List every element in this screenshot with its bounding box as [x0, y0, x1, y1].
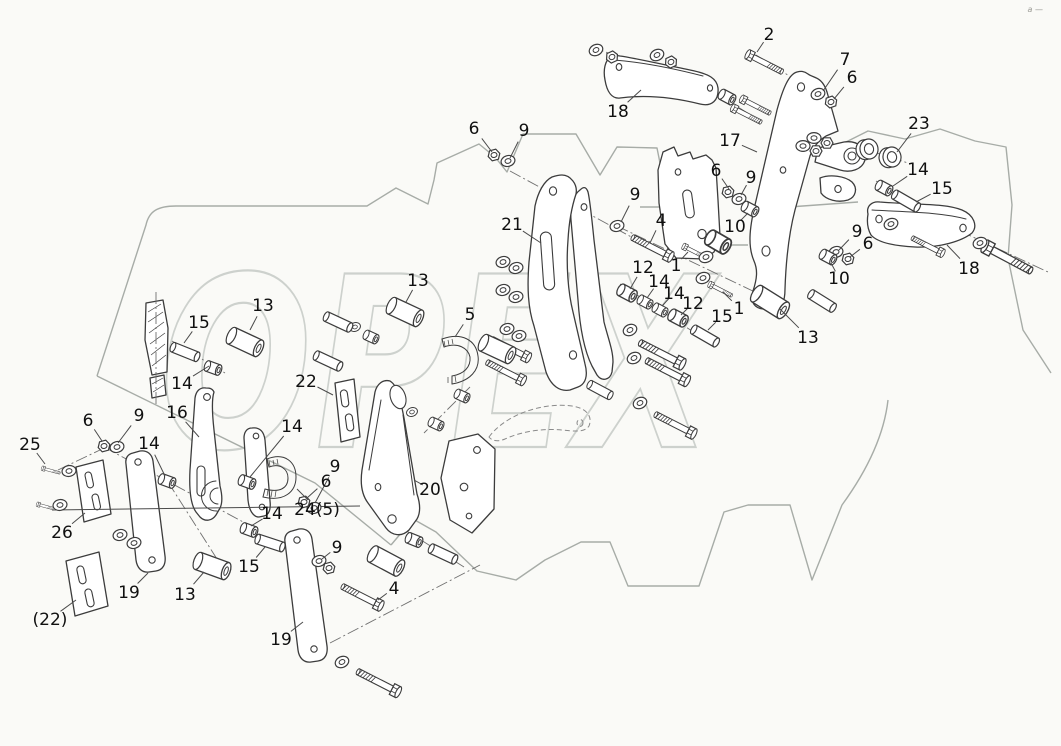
part-label: 6 [847, 68, 858, 88]
part-label: 12 [682, 294, 704, 314]
part-label: 14 [281, 417, 303, 437]
part-label: 6 [321, 472, 332, 492]
part-label: 24(5) [294, 500, 340, 520]
part-label: 23 [908, 114, 930, 134]
leader-line [834, 87, 844, 99]
leader-line [138, 573, 148, 584]
part-label: 14 [261, 504, 283, 524]
nut [821, 138, 833, 148]
part-label: 6 [83, 411, 94, 431]
leader-line [742, 145, 757, 152]
pin [427, 543, 459, 565]
leader-line [94, 429, 102, 441]
part-label: 1 [734, 299, 745, 319]
part-label: (22) [33, 610, 68, 630]
sleeve [365, 544, 407, 578]
part-label: 14 [907, 160, 929, 180]
part-label: 18 [958, 259, 980, 279]
leader-line [897, 133, 911, 152]
part-label: 13 [407, 271, 429, 291]
leader-line [256, 547, 265, 558]
part-label: 22 [295, 372, 317, 392]
washer-9 [109, 440, 125, 454]
part-label: 1 [671, 256, 682, 276]
leader-line [947, 245, 960, 259]
corner-mark: a — [1028, 5, 1043, 14]
part-label: 14 [138, 434, 160, 454]
leader-line [194, 572, 205, 584]
part-label: 18 [607, 102, 629, 122]
part-label: 4 [389, 579, 400, 599]
part-label: 26 [51, 523, 73, 543]
part-label: 25 [19, 435, 41, 455]
part-label: 10 [724, 217, 746, 237]
part-label: 9 [332, 538, 343, 558]
part-label: 19 [270, 630, 292, 650]
washer [333, 654, 350, 670]
leader-line [839, 240, 849, 250]
part-label: 19 [118, 583, 140, 603]
bolt-4 [339, 581, 385, 612]
washer [112, 528, 128, 542]
part-label: 9 [134, 406, 145, 426]
part-label: 15 [711, 307, 733, 327]
part-label: 13 [174, 585, 196, 605]
leader-line [780, 309, 799, 328]
part-label: 21 [501, 215, 523, 235]
part-label: 6 [863, 234, 874, 254]
pin-15 [254, 533, 286, 552]
leader-line [118, 425, 131, 443]
part-label: 17 [719, 131, 741, 151]
part-label: 15 [238, 557, 260, 577]
leader-line [823, 70, 838, 91]
leader-line [621, 206, 629, 222]
bolt [354, 666, 403, 699]
pin [806, 289, 837, 314]
section-strip [145, 300, 168, 398]
exploded-parts-diagram: OPEX [0, 0, 1061, 746]
part-label: 9 [630, 185, 641, 205]
part-label: 6 [711, 161, 722, 181]
part-label: 15 [188, 313, 210, 333]
part-label: 9 [519, 121, 530, 141]
part-26-plate [76, 460, 111, 522]
part-label: 4 [656, 211, 667, 231]
part-label: 15 [931, 179, 953, 199]
bolt [979, 239, 1035, 277]
bushing [717, 88, 738, 106]
part-22b-plate [66, 552, 108, 616]
washer [648, 47, 665, 63]
part-label: 7 [840, 50, 851, 70]
washer [587, 42, 604, 58]
leader-line [916, 194, 931, 202]
washer [796, 141, 810, 152]
part-label: 2 [764, 25, 775, 45]
part-label: 6 [469, 119, 480, 139]
diagram-page: OPEX [0, 0, 1061, 746]
part-label: 9 [746, 168, 757, 188]
part-label: 9 [852, 222, 863, 242]
part-anchor-plate [441, 434, 495, 533]
part-label: 5 [465, 305, 476, 325]
leader-line [850, 249, 860, 257]
leader-line [893, 176, 907, 186]
part-label: 13 [797, 328, 819, 348]
nut [810, 146, 822, 156]
part-label: 16 [166, 403, 188, 423]
part-label: 13 [252, 296, 274, 316]
pin-25 [41, 466, 61, 476]
leader-line [378, 593, 387, 600]
washer [807, 133, 821, 144]
part-label: 10 [828, 269, 850, 289]
sleeve-13 [191, 551, 233, 581]
part-label: 14 [171, 374, 193, 394]
nut-6 [487, 148, 501, 161]
part-18-bracket-left [604, 56, 718, 105]
washer-25 [61, 464, 77, 477]
bushing [404, 532, 424, 549]
bolt-2 [744, 49, 786, 77]
part-label: 20 [419, 480, 441, 500]
